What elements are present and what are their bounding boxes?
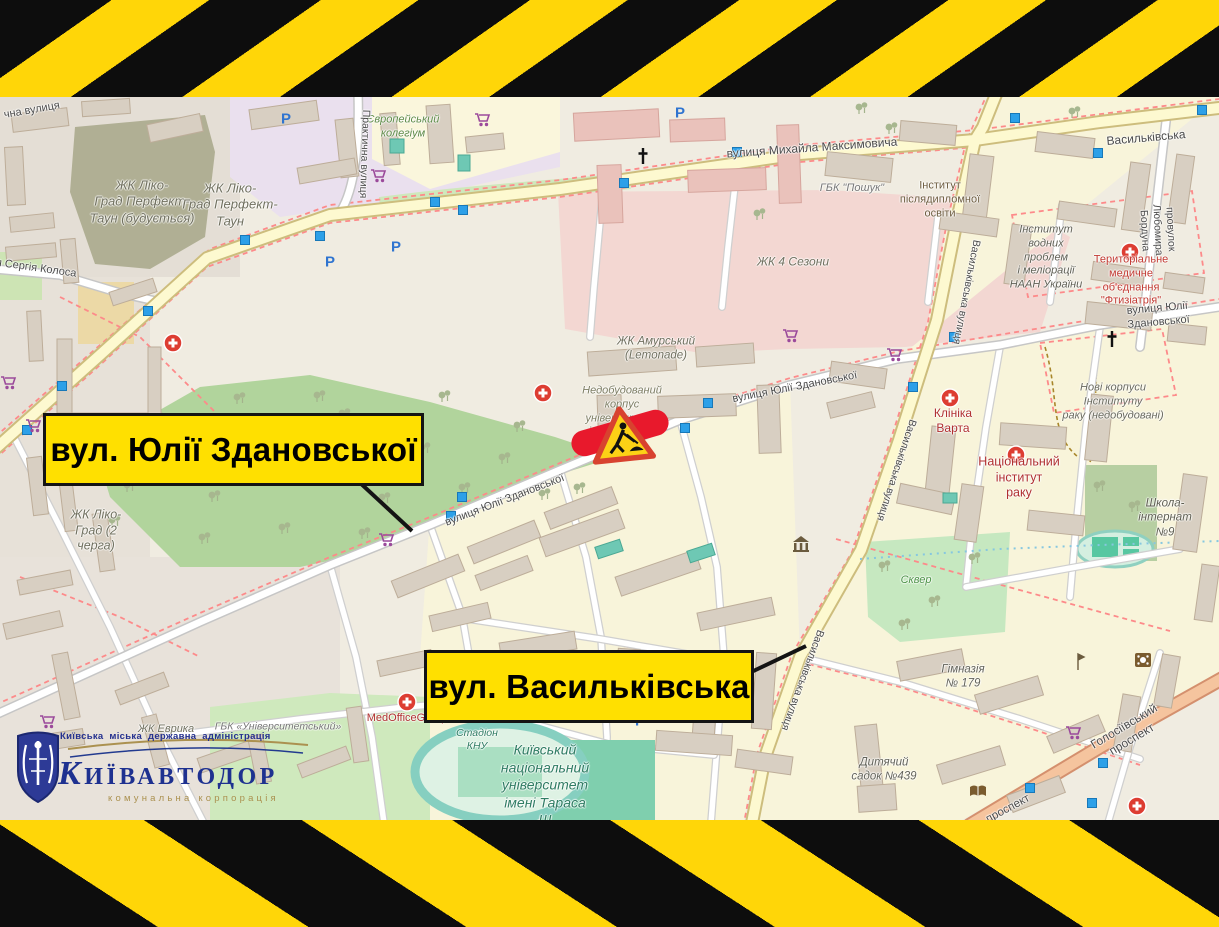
callout-zdanovska: вул. Юлії Здановської: [43, 413, 424, 486]
callout-vasylkivska-text: вул. Васильківська: [428, 668, 749, 706]
cinema-icon: [1135, 653, 1151, 667]
logo-admin-line: Київська міська державна адміністрація: [60, 731, 290, 742]
logo-tagline: комунальна корпорація: [108, 793, 279, 804]
callout-zdanovska-text: вул. Юлії Здановської: [50, 431, 416, 469]
logo-brand-text: КИЇВАВТОДОР: [58, 755, 278, 793]
parking-icon: Р: [675, 105, 685, 122]
hazard-stripes-bottom: [0, 820, 1219, 927]
callout-vasylkivska: вул. Васильківська: [424, 650, 754, 723]
kyiv-emblem-icon: [16, 729, 60, 803]
city-map: Європейський колегіум чна вулиця Практич…: [0, 97, 1219, 820]
parking-icon: Р: [325, 254, 335, 271]
kyivavtodor-logo: Київська міська державна адміністрація К…: [8, 725, 318, 817]
announcement-image: Європейський колегіум чна вулиця Практич…: [0, 0, 1219, 927]
parking-icon: Р: [281, 111, 291, 128]
parking-icon: Р: [391, 239, 401, 256]
hazard-stripes-top: [0, 0, 1219, 97]
library-icon: [970, 786, 986, 797]
